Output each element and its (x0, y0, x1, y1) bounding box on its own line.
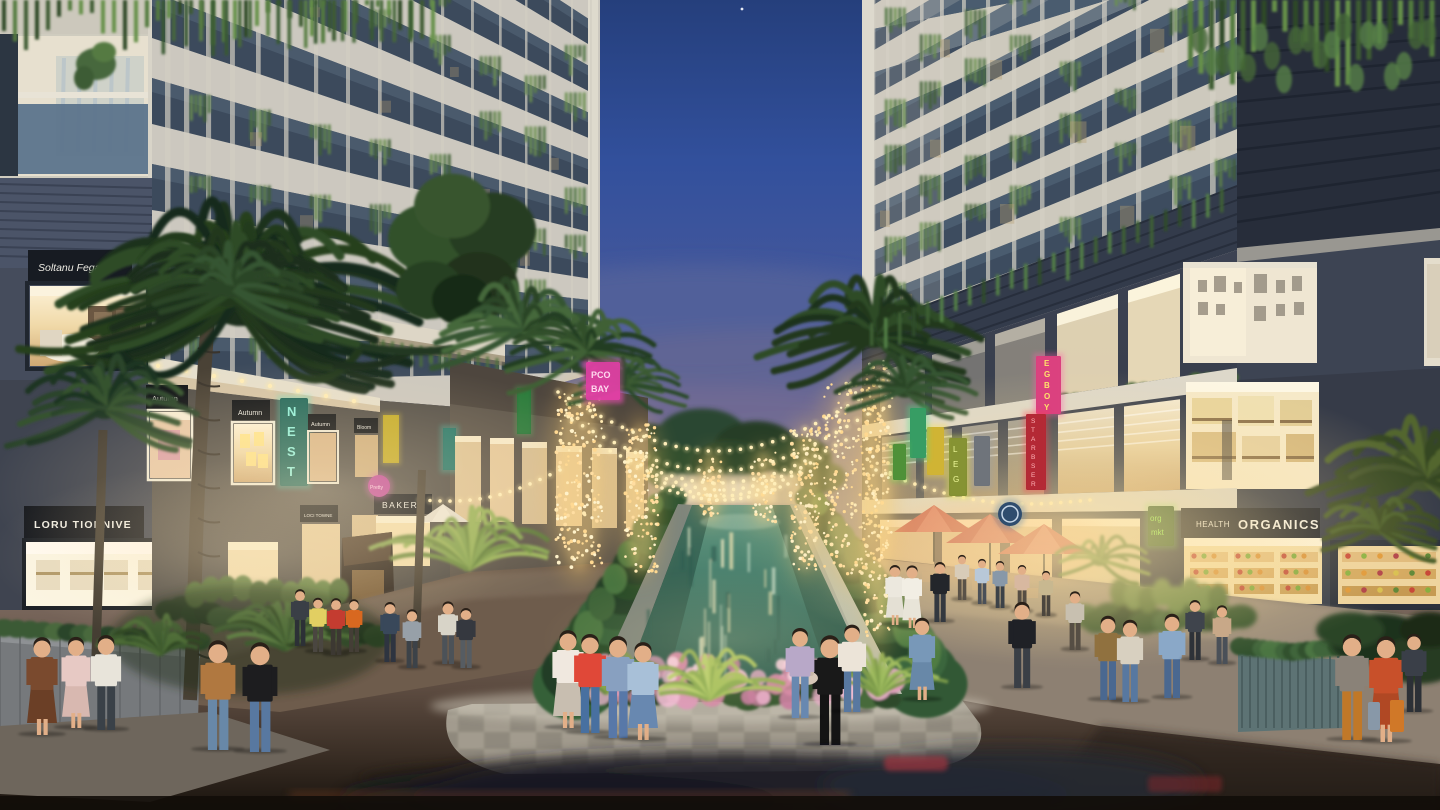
svg-text:B: B (1044, 381, 1050, 390)
svg-text:E: E (1031, 472, 1036, 479)
svg-text:BAY: BAY (591, 384, 609, 394)
svg-text:A: A (1031, 436, 1036, 443)
svg-text:O: O (1044, 392, 1050, 401)
svg-text:E: E (953, 460, 958, 469)
svg-text:G: G (953, 475, 959, 484)
svg-text:E: E (1044, 359, 1050, 368)
svg-text:B: B (1031, 454, 1035, 461)
svg-text:S: S (1031, 463, 1036, 470)
svg-text:T: T (1031, 427, 1035, 434)
svg-text:R: R (1031, 445, 1036, 452)
svg-text:S: S (1031, 418, 1036, 425)
svg-text:Y: Y (1044, 403, 1050, 412)
svg-text:G: G (1044, 370, 1050, 379)
svg-text:PCO: PCO (591, 370, 611, 380)
svg-text:L: L (953, 445, 958, 454)
svg-text:R: R (1031, 481, 1036, 488)
